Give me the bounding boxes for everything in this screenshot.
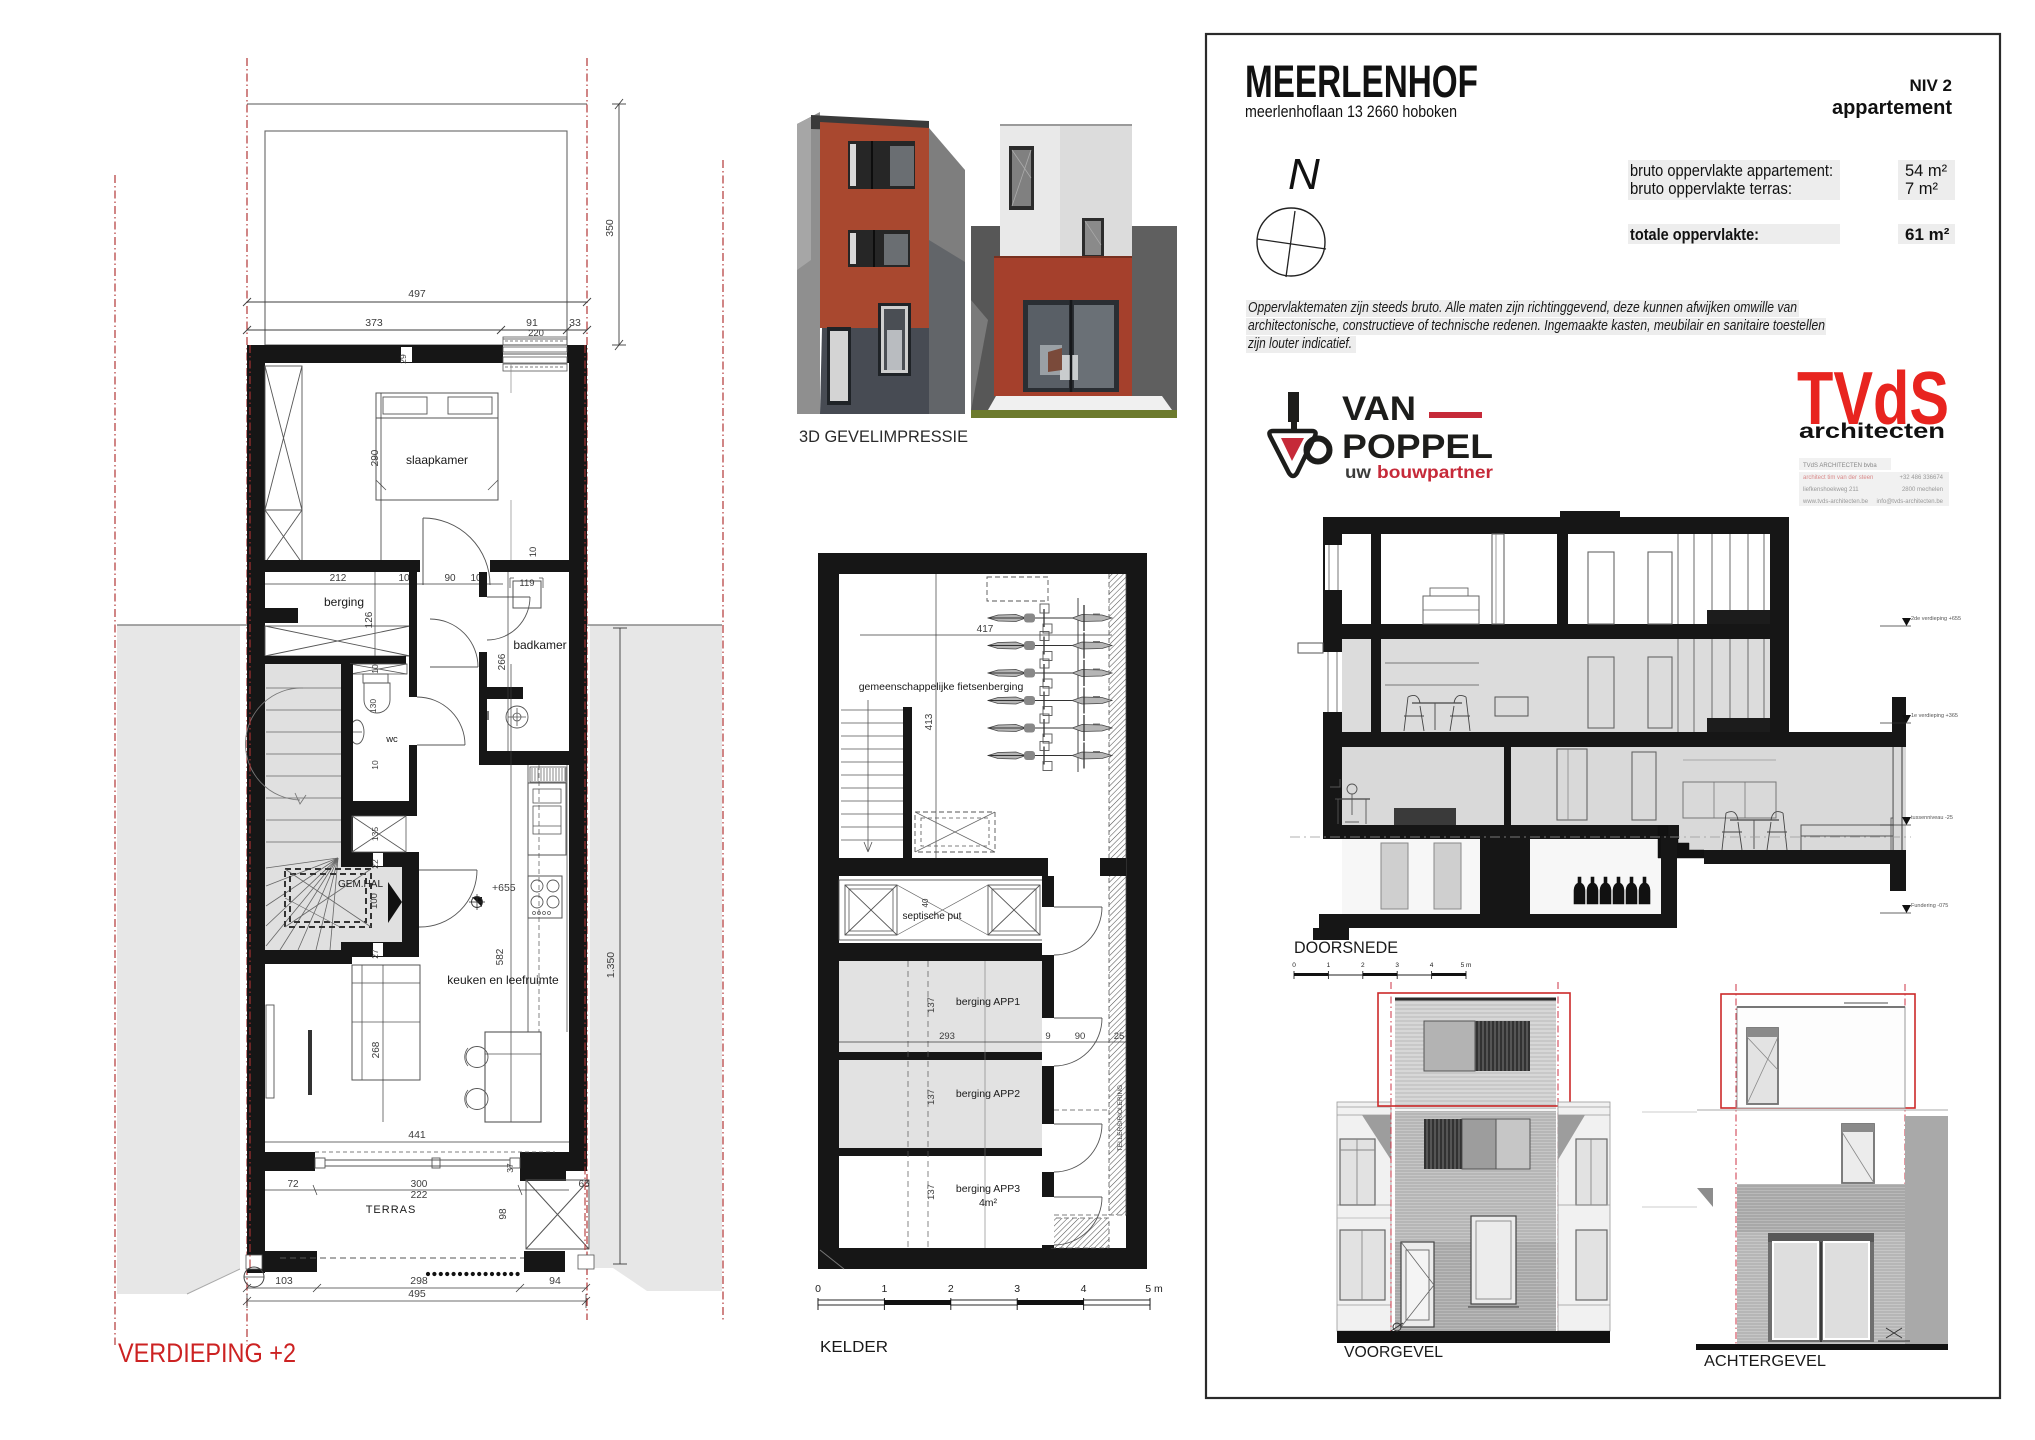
svg-text:94: 94 <box>549 1275 561 1287</box>
svg-text:290: 290 <box>370 449 381 466</box>
svg-text:1.350: 1.350 <box>605 952 617 978</box>
svg-text:berging: berging <box>324 595 364 609</box>
svg-text:413: 413 <box>924 713 935 730</box>
svg-text:5 m: 5 m <box>1145 1283 1163 1295</box>
svg-text:135: 135 <box>370 827 380 841</box>
svg-text:33: 33 <box>569 317 581 329</box>
svg-text:441: 441 <box>408 1129 426 1141</box>
svg-text:badkamer: badkamer <box>513 638 566 652</box>
svg-text:DOORSNEDE: DOORSNEDE <box>1294 939 1398 957</box>
svg-text:1: 1 <box>881 1283 887 1295</box>
svg-text:582: 582 <box>495 948 506 965</box>
svg-text:gemeenschappelijke fietsenberg: gemeenschappelijke fietsenberging <box>859 681 1024 693</box>
svg-text:2: 2 <box>948 1283 954 1295</box>
svg-text:293: 293 <box>939 1031 955 1042</box>
svg-text:uw: uw <box>1345 462 1371 482</box>
svg-text:Oppervlaktematen zijn steeds b: Oppervlaktematen zijn steeds bruto. Alle… <box>1248 300 1797 316</box>
svg-text:+32 486 336674: +32 486 336674 <box>1899 475 1943 481</box>
svg-text:130: 130 <box>368 699 378 713</box>
svg-text:4m²: 4m² <box>979 1197 998 1209</box>
svg-text:Fundering -075: Fundering -075 <box>1911 903 1948 909</box>
svg-text:7 m²: 7 m² <box>1905 180 1939 198</box>
svg-text:VERDIEPING +2: VERDIEPING +2 <box>118 1338 296 1368</box>
svg-text:ACHTERGEVEL: ACHTERGEVEL <box>1704 1353 1826 1370</box>
svg-text:wc: wc <box>385 734 398 745</box>
svg-text:61 m²: 61 m² <box>1905 225 1950 244</box>
svg-text:NIV 2: NIV 2 <box>1909 76 1952 95</box>
svg-text:KELDER: KELDER <box>820 1339 888 1356</box>
svg-text:350: 350 <box>604 219 616 237</box>
svg-text:10: 10 <box>398 573 410 584</box>
svg-text:9: 9 <box>1045 1031 1050 1042</box>
svg-text:54 m²: 54 m² <box>1905 162 1948 180</box>
svg-text:GEM.HAL: GEM.HAL <box>338 879 383 890</box>
svg-text:architectonische, constructiev: architectonische, constructieve of techn… <box>1248 318 1825 334</box>
svg-text:meerlenhoflaan 13 2660 hoboken: meerlenhoflaan 13 2660 hoboken <box>1245 102 1457 121</box>
svg-text:373: 373 <box>365 317 383 329</box>
svg-text:417: 417 <box>977 624 994 635</box>
svg-text:+655: +655 <box>492 882 516 894</box>
svg-text:266: 266 <box>497 653 508 670</box>
svg-text:MEERLENHOF: MEERLENHOF <box>1245 56 1478 107</box>
svg-text:bouwpartner: bouwpartner <box>1377 462 1493 482</box>
svg-text:10: 10 <box>370 664 380 674</box>
svg-text:bruto oppervlakte terras:: bruto oppervlakte terras: <box>1630 180 1792 198</box>
svg-text:268: 268 <box>371 1041 382 1058</box>
svg-text:TERRAS: TERRAS <box>366 1204 417 1216</box>
svg-text:berging APP1: berging APP1 <box>956 996 1020 1008</box>
svg-text:POPPEL: POPPEL <box>1342 428 1493 466</box>
svg-text:4: 4 <box>1430 962 1434 969</box>
svg-text:495: 495 <box>408 1288 426 1300</box>
svg-text:90: 90 <box>1075 1031 1086 1042</box>
svg-text:www.tvds-architecten.be: www.tvds-architecten.be <box>1802 499 1869 505</box>
svg-text:keuken en leefruimte: keuken en leefruimte <box>447 973 559 987</box>
svg-text:3: 3 <box>1395 962 1399 969</box>
svg-text:300: 300 <box>411 1179 428 1190</box>
svg-text:0: 0 <box>1292 962 1296 969</box>
svg-text:bruto oppervlakte appartement:: bruto oppervlakte appartement: <box>1630 162 1833 180</box>
svg-text:27: 27 <box>370 949 380 959</box>
svg-text:119: 119 <box>519 578 534 589</box>
svg-text:3D GEVELIMPRESSIE: 3D GEVELIMPRESSIE <box>799 427 968 446</box>
svg-text:65: 65 <box>578 1179 590 1190</box>
svg-text:1e verdieping +365: 1e verdieping +365 <box>1911 713 1958 719</box>
svg-text:2: 2 <box>1361 962 1365 969</box>
svg-text:2800 mechelen: 2800 mechelen <box>1902 487 1943 493</box>
svg-text:5 m: 5 m <box>1461 962 1472 969</box>
svg-text:1: 1 <box>1327 962 1331 969</box>
svg-text:totale oppervlakte:: totale oppervlakte: <box>1630 225 1759 244</box>
svg-text:VOORGEVEL: VOORGEVEL <box>1344 1344 1443 1361</box>
svg-text:slaapkamer: slaapkamer <box>406 453 468 467</box>
svg-text:architecten: architecten <box>1799 420 1945 443</box>
svg-text:37: 37 <box>505 1163 515 1173</box>
svg-text:berging APP2: berging APP2 <box>956 1088 1020 1100</box>
svg-text:72: 72 <box>287 1179 299 1190</box>
svg-text:tussenniveau -25: tussenniveau -25 <box>1911 815 1953 821</box>
svg-text:98: 98 <box>498 1208 509 1220</box>
svg-text:info@tvds-architecten.be: info@tvds-architecten.be <box>1877 499 1944 505</box>
svg-text:222: 222 <box>411 1190 428 1201</box>
svg-text:298: 298 <box>410 1275 428 1287</box>
svg-text:29: 29 <box>398 354 408 364</box>
svg-text:103: 103 <box>275 1275 293 1287</box>
svg-text:100: 100 <box>369 893 380 909</box>
svg-text:septische put: septische put <box>903 911 962 922</box>
svg-text:liefkenshoekweg 211: liefkenshoekweg 211 <box>1803 487 1859 493</box>
svg-text:40: 40 <box>921 898 930 907</box>
svg-text:2de verdieping +655: 2de verdieping +655 <box>1911 616 1961 622</box>
svg-text:appartement: appartement <box>1832 97 1952 119</box>
svg-text:25: 25 <box>1114 1031 1125 1042</box>
svg-text:zijn louter indicatief.: zijn louter indicatief. <box>1247 336 1352 352</box>
svg-text:22: 22 <box>370 859 380 869</box>
svg-text:3: 3 <box>1014 1283 1020 1295</box>
svg-text:497: 497 <box>408 288 426 300</box>
svg-text:10: 10 <box>370 760 380 770</box>
svg-text:10: 10 <box>528 547 539 558</box>
svg-text:4: 4 <box>1081 1283 1087 1295</box>
svg-text:architect tim van der steen: architect tim van der steen <box>1803 475 1873 481</box>
svg-text:90: 90 <box>444 573 456 584</box>
svg-text:212: 212 <box>330 573 347 584</box>
svg-text:VAN: VAN <box>1342 390 1416 428</box>
svg-text:TELLERS/RIOLERING: TELLERS/RIOLERING <box>1117 1085 1124 1151</box>
svg-text:berging APP3: berging APP3 <box>956 1183 1020 1195</box>
svg-text:N: N <box>1288 150 1320 199</box>
svg-text:0: 0 <box>815 1283 821 1295</box>
svg-text:TVdS ARCHITECTEN bvba: TVdS ARCHITECTEN bvba <box>1803 463 1877 469</box>
